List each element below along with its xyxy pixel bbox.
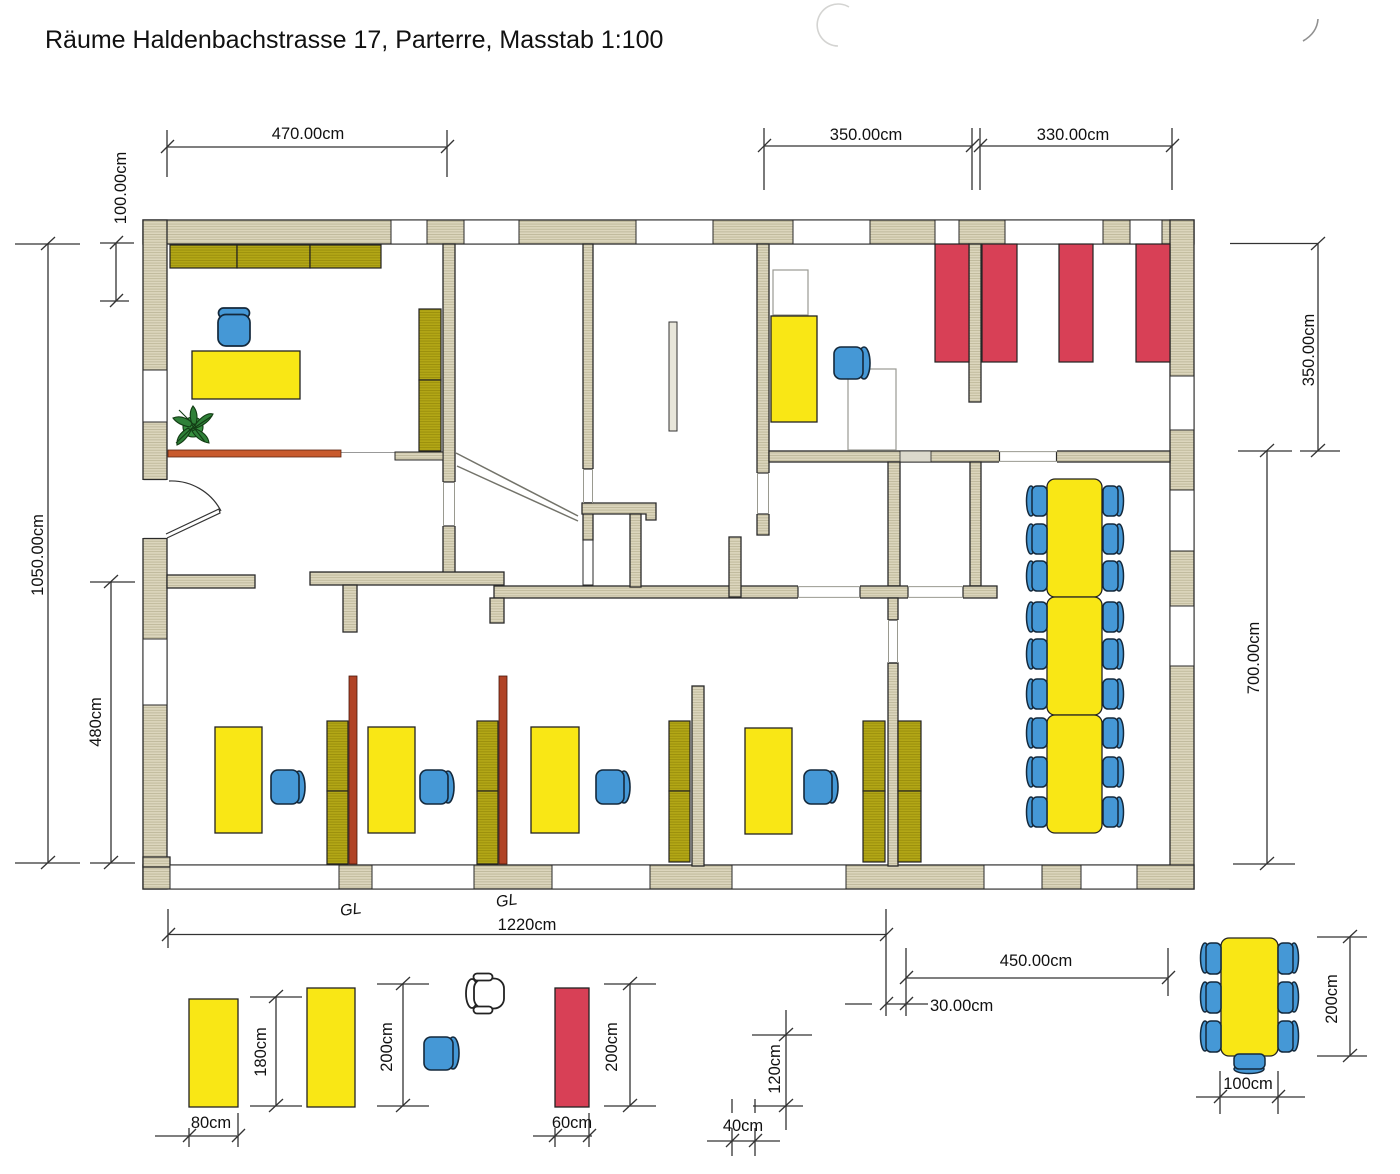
svg-text:330.00cm: 330.00cm xyxy=(1037,126,1109,144)
svg-text:180cm: 180cm xyxy=(252,1027,270,1077)
svg-text:Räume Haldenbachstrasse 17, Pa: Räume Haldenbachstrasse 17, Parterre, Ma… xyxy=(45,26,663,54)
svg-text:1220cm: 1220cm xyxy=(498,916,557,934)
svg-text:480cm: 480cm xyxy=(87,697,105,747)
svg-text:470.00cm: 470.00cm xyxy=(272,125,344,143)
svg-text:1050.00cm: 1050.00cm xyxy=(29,514,47,596)
svg-text:40cm: 40cm xyxy=(723,1117,763,1135)
svg-text:350.00cm: 350.00cm xyxy=(1300,314,1318,386)
svg-text:200cm: 200cm xyxy=(378,1022,396,1072)
svg-text:100cm: 100cm xyxy=(1223,1075,1273,1093)
svg-text:700.00cm: 700.00cm xyxy=(1245,622,1263,694)
svg-text:200cm: 200cm xyxy=(603,1022,621,1072)
svg-text:450.00cm: 450.00cm xyxy=(1000,952,1072,970)
svg-text:350.00cm: 350.00cm xyxy=(830,126,902,144)
svg-text:200cm: 200cm xyxy=(1323,974,1341,1024)
svg-text:GL: GL xyxy=(495,891,519,911)
svg-text:GL: GL xyxy=(339,900,363,920)
svg-text:80cm: 80cm xyxy=(191,1114,231,1132)
svg-text:100.00cm: 100.00cm xyxy=(112,152,130,224)
svg-text:120cm: 120cm xyxy=(766,1044,784,1094)
svg-text:30.00cm: 30.00cm xyxy=(930,997,993,1015)
svg-text:60cm: 60cm xyxy=(552,1114,592,1132)
